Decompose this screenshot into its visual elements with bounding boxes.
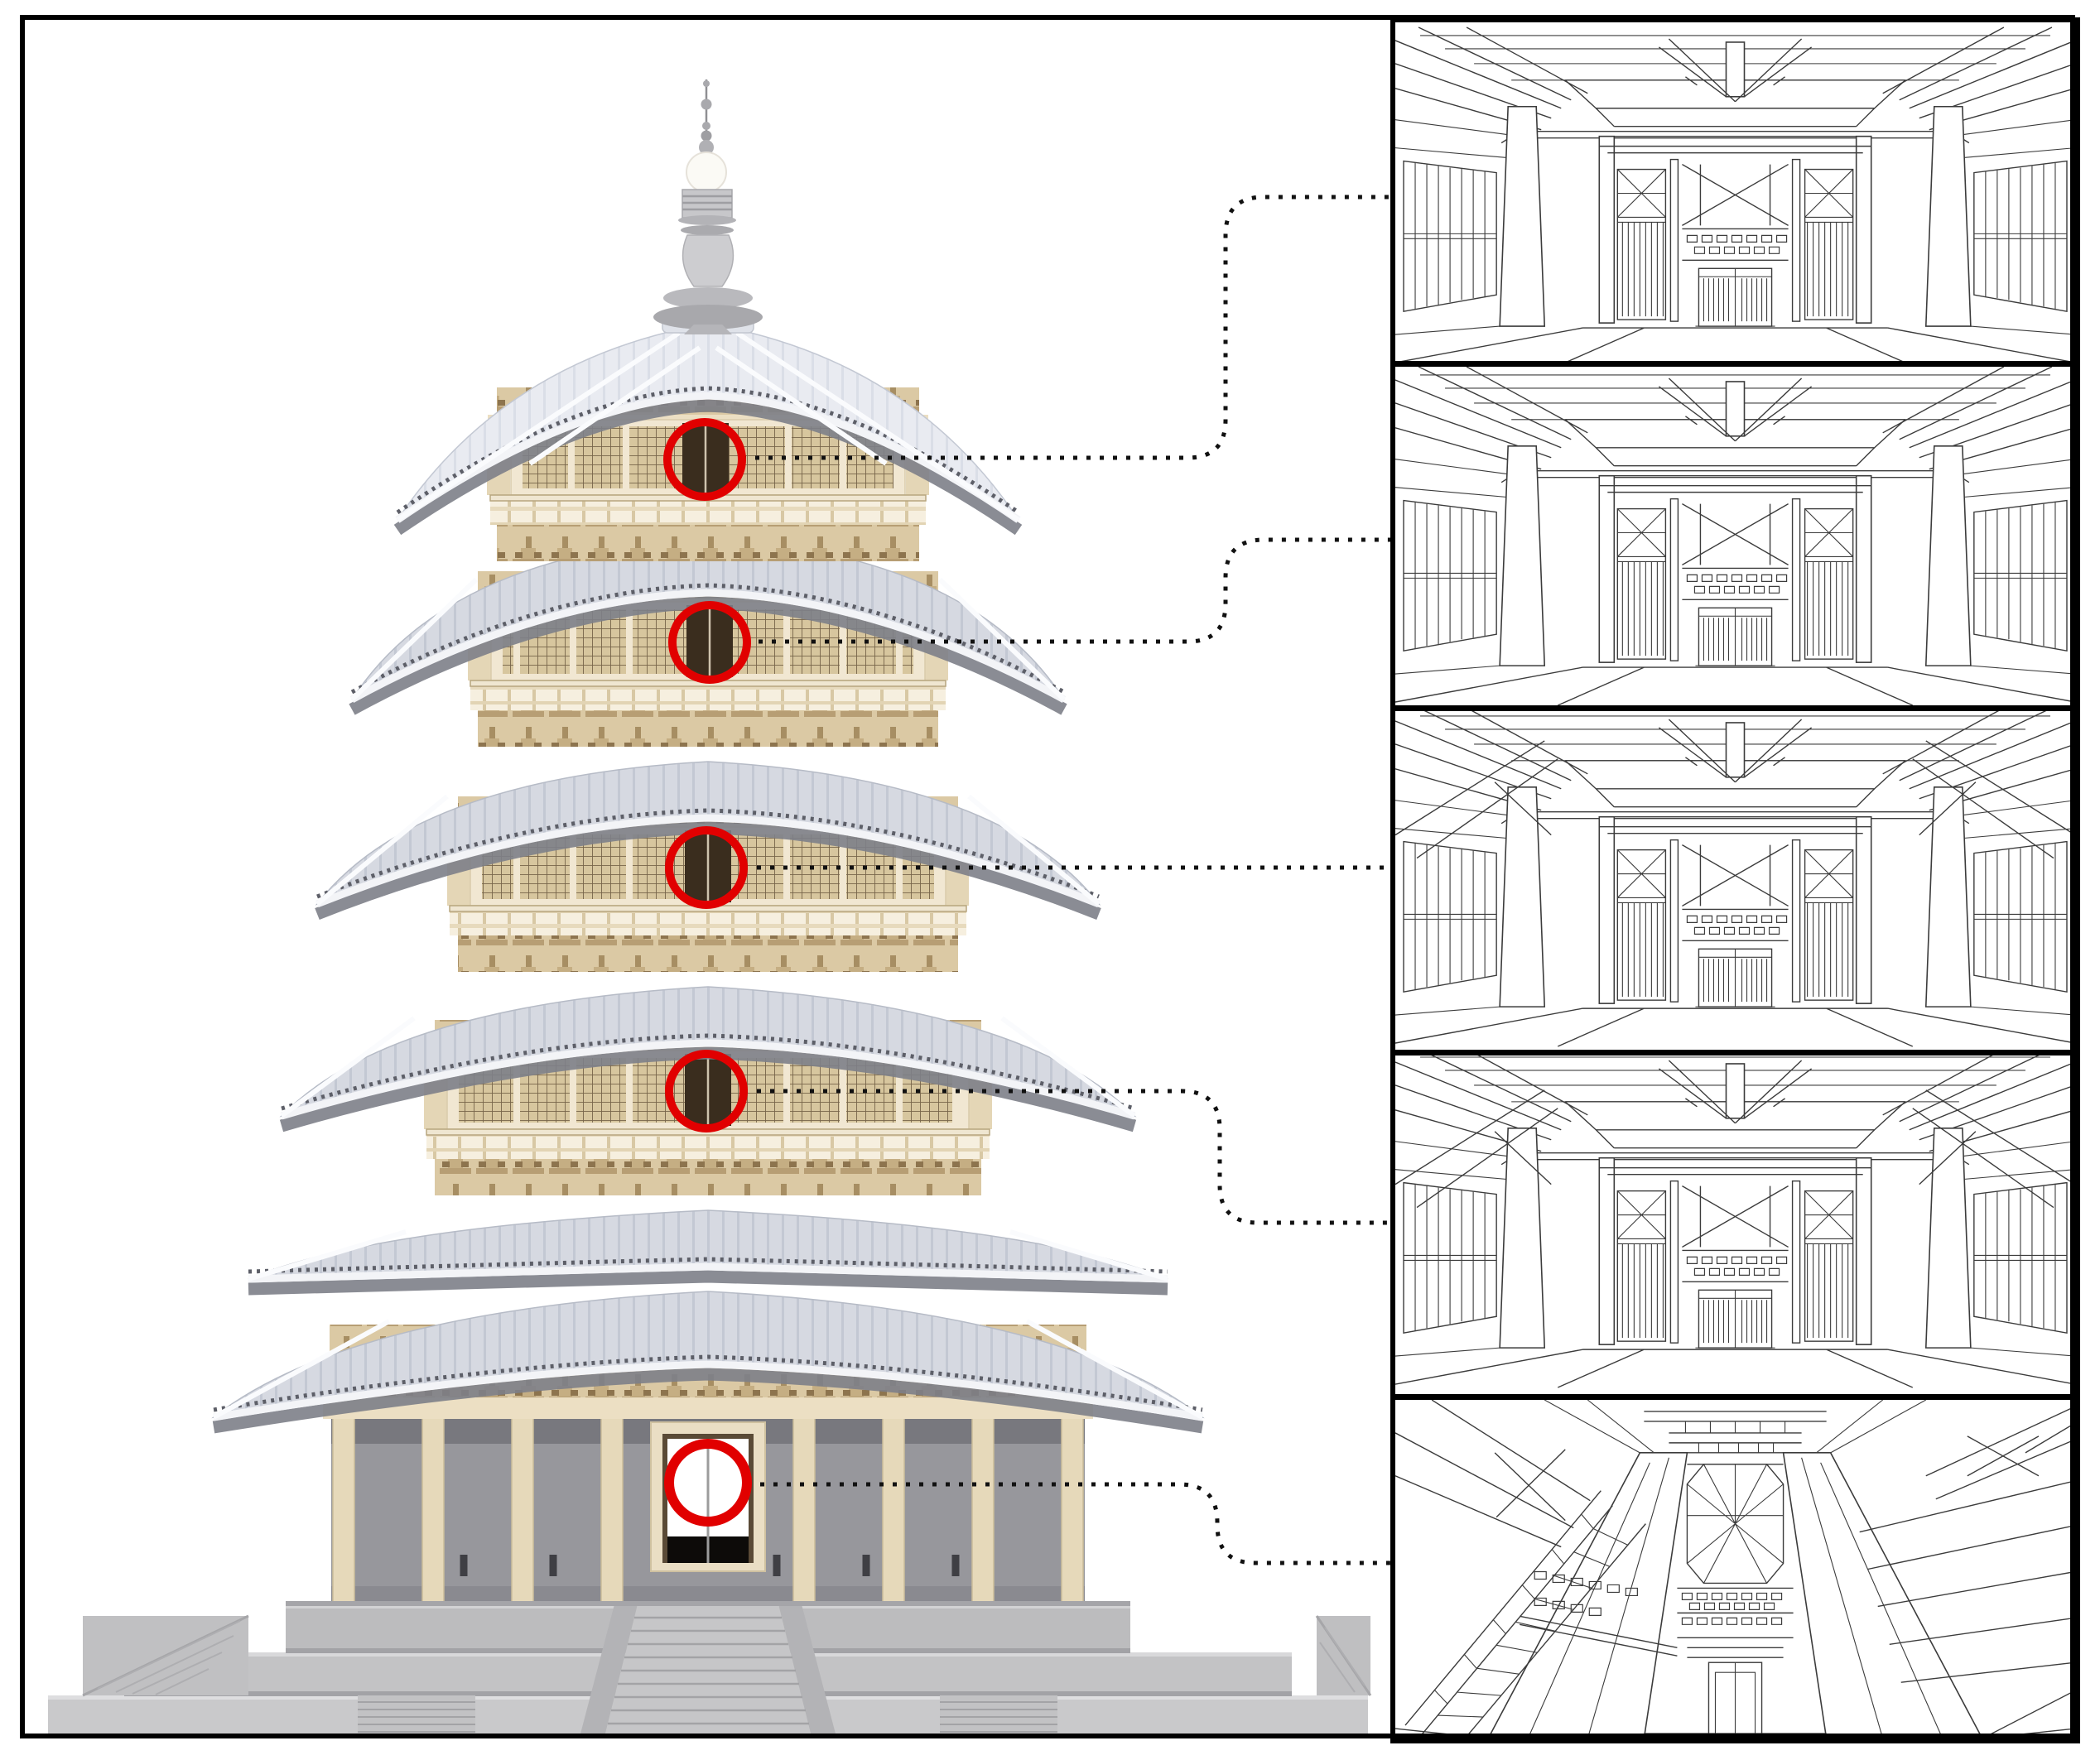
entrance-door: [651, 1422, 765, 1571]
base-stair-left: [83, 1616, 248, 1695]
roof-1-upper: [248, 1210, 1168, 1289]
wireframe-interior-story-4: [1395, 367, 2075, 705]
panel-story-2: [1395, 1056, 2075, 1394]
pagoda-render: [0, 0, 1390, 1760]
base-stair-front-left: [358, 1695, 475, 1737]
wireframe-interior-story-2: [1395, 1056, 2075, 1394]
base-platform: [48, 1604, 1370, 1737]
wireframe-interior-story-3: [1395, 711, 2075, 1050]
base-stair-front-right: [940, 1695, 1057, 1737]
wireframe-interior-story-5: [1395, 22, 2075, 361]
figure-root: [0, 0, 2100, 1760]
panel-story-4: [1395, 367, 2075, 705]
spire-finial: [653, 79, 763, 334]
panel-column: [1390, 17, 2080, 1743]
panel-story-5: [1395, 22, 2075, 361]
panel-story-3: [1395, 711, 2075, 1050]
base-grand-stair: [580, 1604, 836, 1737]
wireframe-interior-story-1: [1395, 1400, 2075, 1738]
panel-story-1: [1395, 1400, 2075, 1738]
base-stair-right: [1317, 1616, 1370, 1695]
story-1-colonnade: [286, 1402, 1130, 1606]
